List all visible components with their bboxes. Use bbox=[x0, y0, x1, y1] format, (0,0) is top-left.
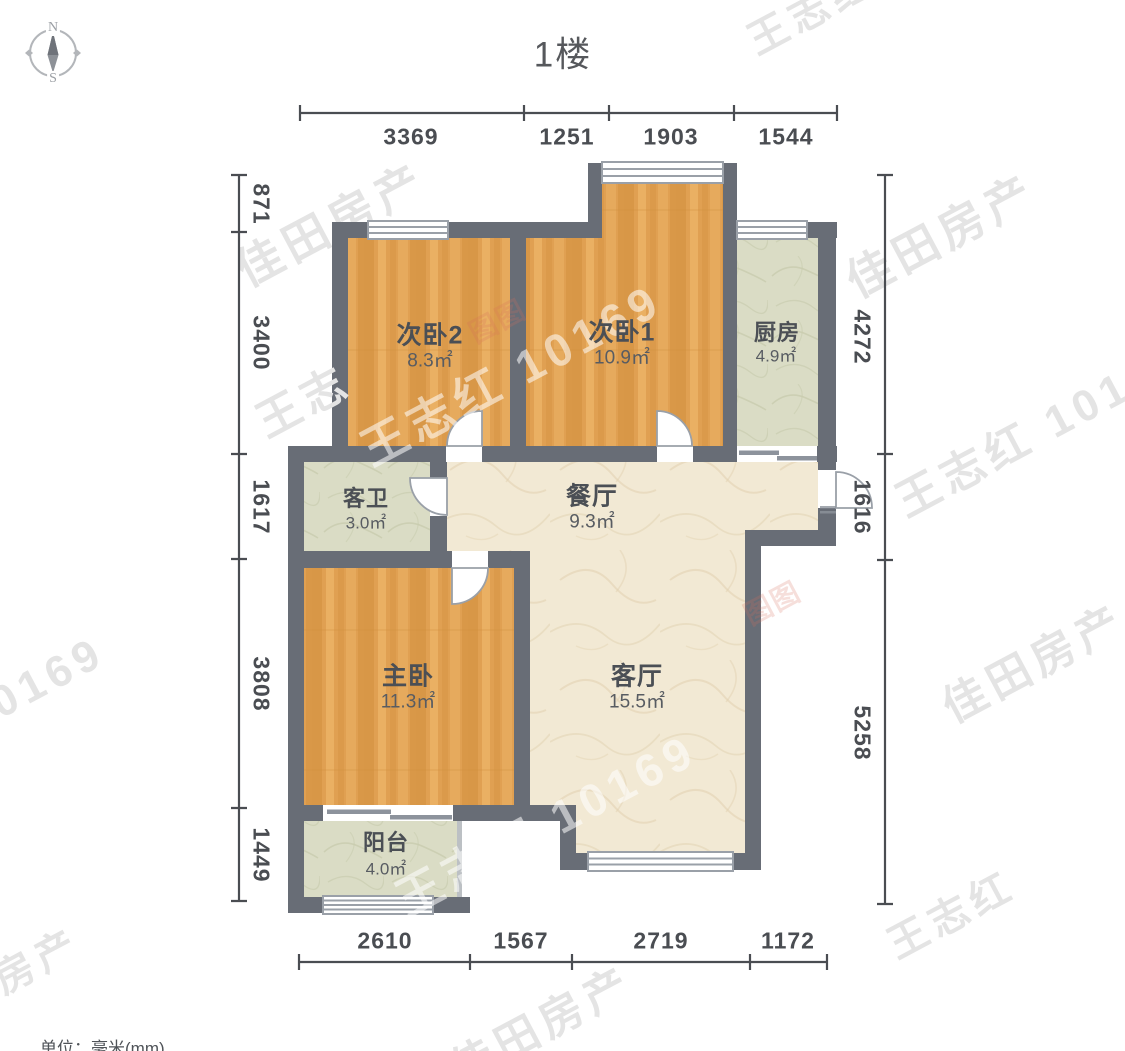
dim-bottom-1: 2610 bbox=[357, 930, 412, 953]
room-area-bedroom2: 8.3㎡ bbox=[407, 352, 452, 371]
room-area-bedroom1: 10.9㎡ bbox=[594, 349, 650, 368]
unit-note: 单位：毫米(mm) bbox=[40, 1034, 165, 1051]
room-label-bathroom: 客卫 bbox=[343, 488, 389, 510]
window-bedroom2 bbox=[368, 221, 448, 239]
page-title: 1楼 bbox=[534, 38, 592, 73]
dim-left-4: 3808 bbox=[250, 656, 273, 711]
room-label-master: 主卧 bbox=[382, 665, 434, 690]
dim-bottom-3: 2719 bbox=[633, 930, 688, 953]
floorplan-drawing bbox=[0, 0, 1125, 1051]
dim-right-3: 5258 bbox=[851, 705, 874, 760]
room-area-bathroom: 3.0㎡ bbox=[346, 515, 387, 532]
dim-left-2: 3400 bbox=[250, 315, 273, 370]
dim-bottom-4: 1172 bbox=[761, 930, 815, 953]
door-balcony-slider bbox=[323, 805, 453, 821]
dim-top-3: 1903 bbox=[643, 126, 698, 149]
dim-right-1: 4272 bbox=[851, 309, 874, 364]
window-kitchen bbox=[737, 221, 807, 239]
dim-left-3: 1617 bbox=[250, 479, 273, 534]
floorplan-canvas: 佳田房产 佳田房产 王志红 王志红 101 佳田房产 0169 bbox=[0, 0, 1125, 1051]
room-area-balcony: 4.0㎡ bbox=[366, 861, 407, 878]
compass-icon bbox=[25, 30, 81, 76]
room-label-bedroom2: 次卧2 bbox=[397, 324, 464, 349]
dim-top-4: 1544 bbox=[758, 126, 813, 149]
dim-top-2: 1251 bbox=[539, 126, 594, 149]
dim-top-1: 3369 bbox=[383, 126, 438, 149]
dim-bottom-2: 1567 bbox=[493, 930, 548, 953]
room-label-living: 客厅 bbox=[611, 665, 663, 690]
door-kitchen-slider bbox=[737, 446, 817, 462]
room-label-kitchen: 厨房 bbox=[754, 322, 800, 344]
dim-left-5: 1449 bbox=[250, 827, 273, 882]
window-living bbox=[588, 852, 733, 871]
compass-north-label: N bbox=[46, 20, 60, 36]
window-bedroom1 bbox=[602, 162, 723, 183]
room-area-kitchen: 4.9㎡ bbox=[756, 348, 797, 365]
room-floors bbox=[304, 183, 818, 897]
room-label-bedroom1: 次卧1 bbox=[589, 321, 656, 346]
room-label-balcony: 阳台 bbox=[363, 832, 409, 854]
compass-south-label: S bbox=[47, 71, 59, 87]
room-area-master: 11.3㎡ bbox=[381, 693, 436, 712]
balcony-rail bbox=[457, 821, 462, 897]
room-area-living: 15.5㎡ bbox=[609, 693, 665, 712]
window-balcony bbox=[323, 896, 433, 914]
room-label-dining: 餐厅 bbox=[566, 485, 618, 510]
room-area-dining: 9.3㎡ bbox=[569, 513, 614, 532]
dim-left-1: 871 bbox=[250, 183, 273, 224]
dim-right-2: 1616 bbox=[851, 479, 874, 534]
